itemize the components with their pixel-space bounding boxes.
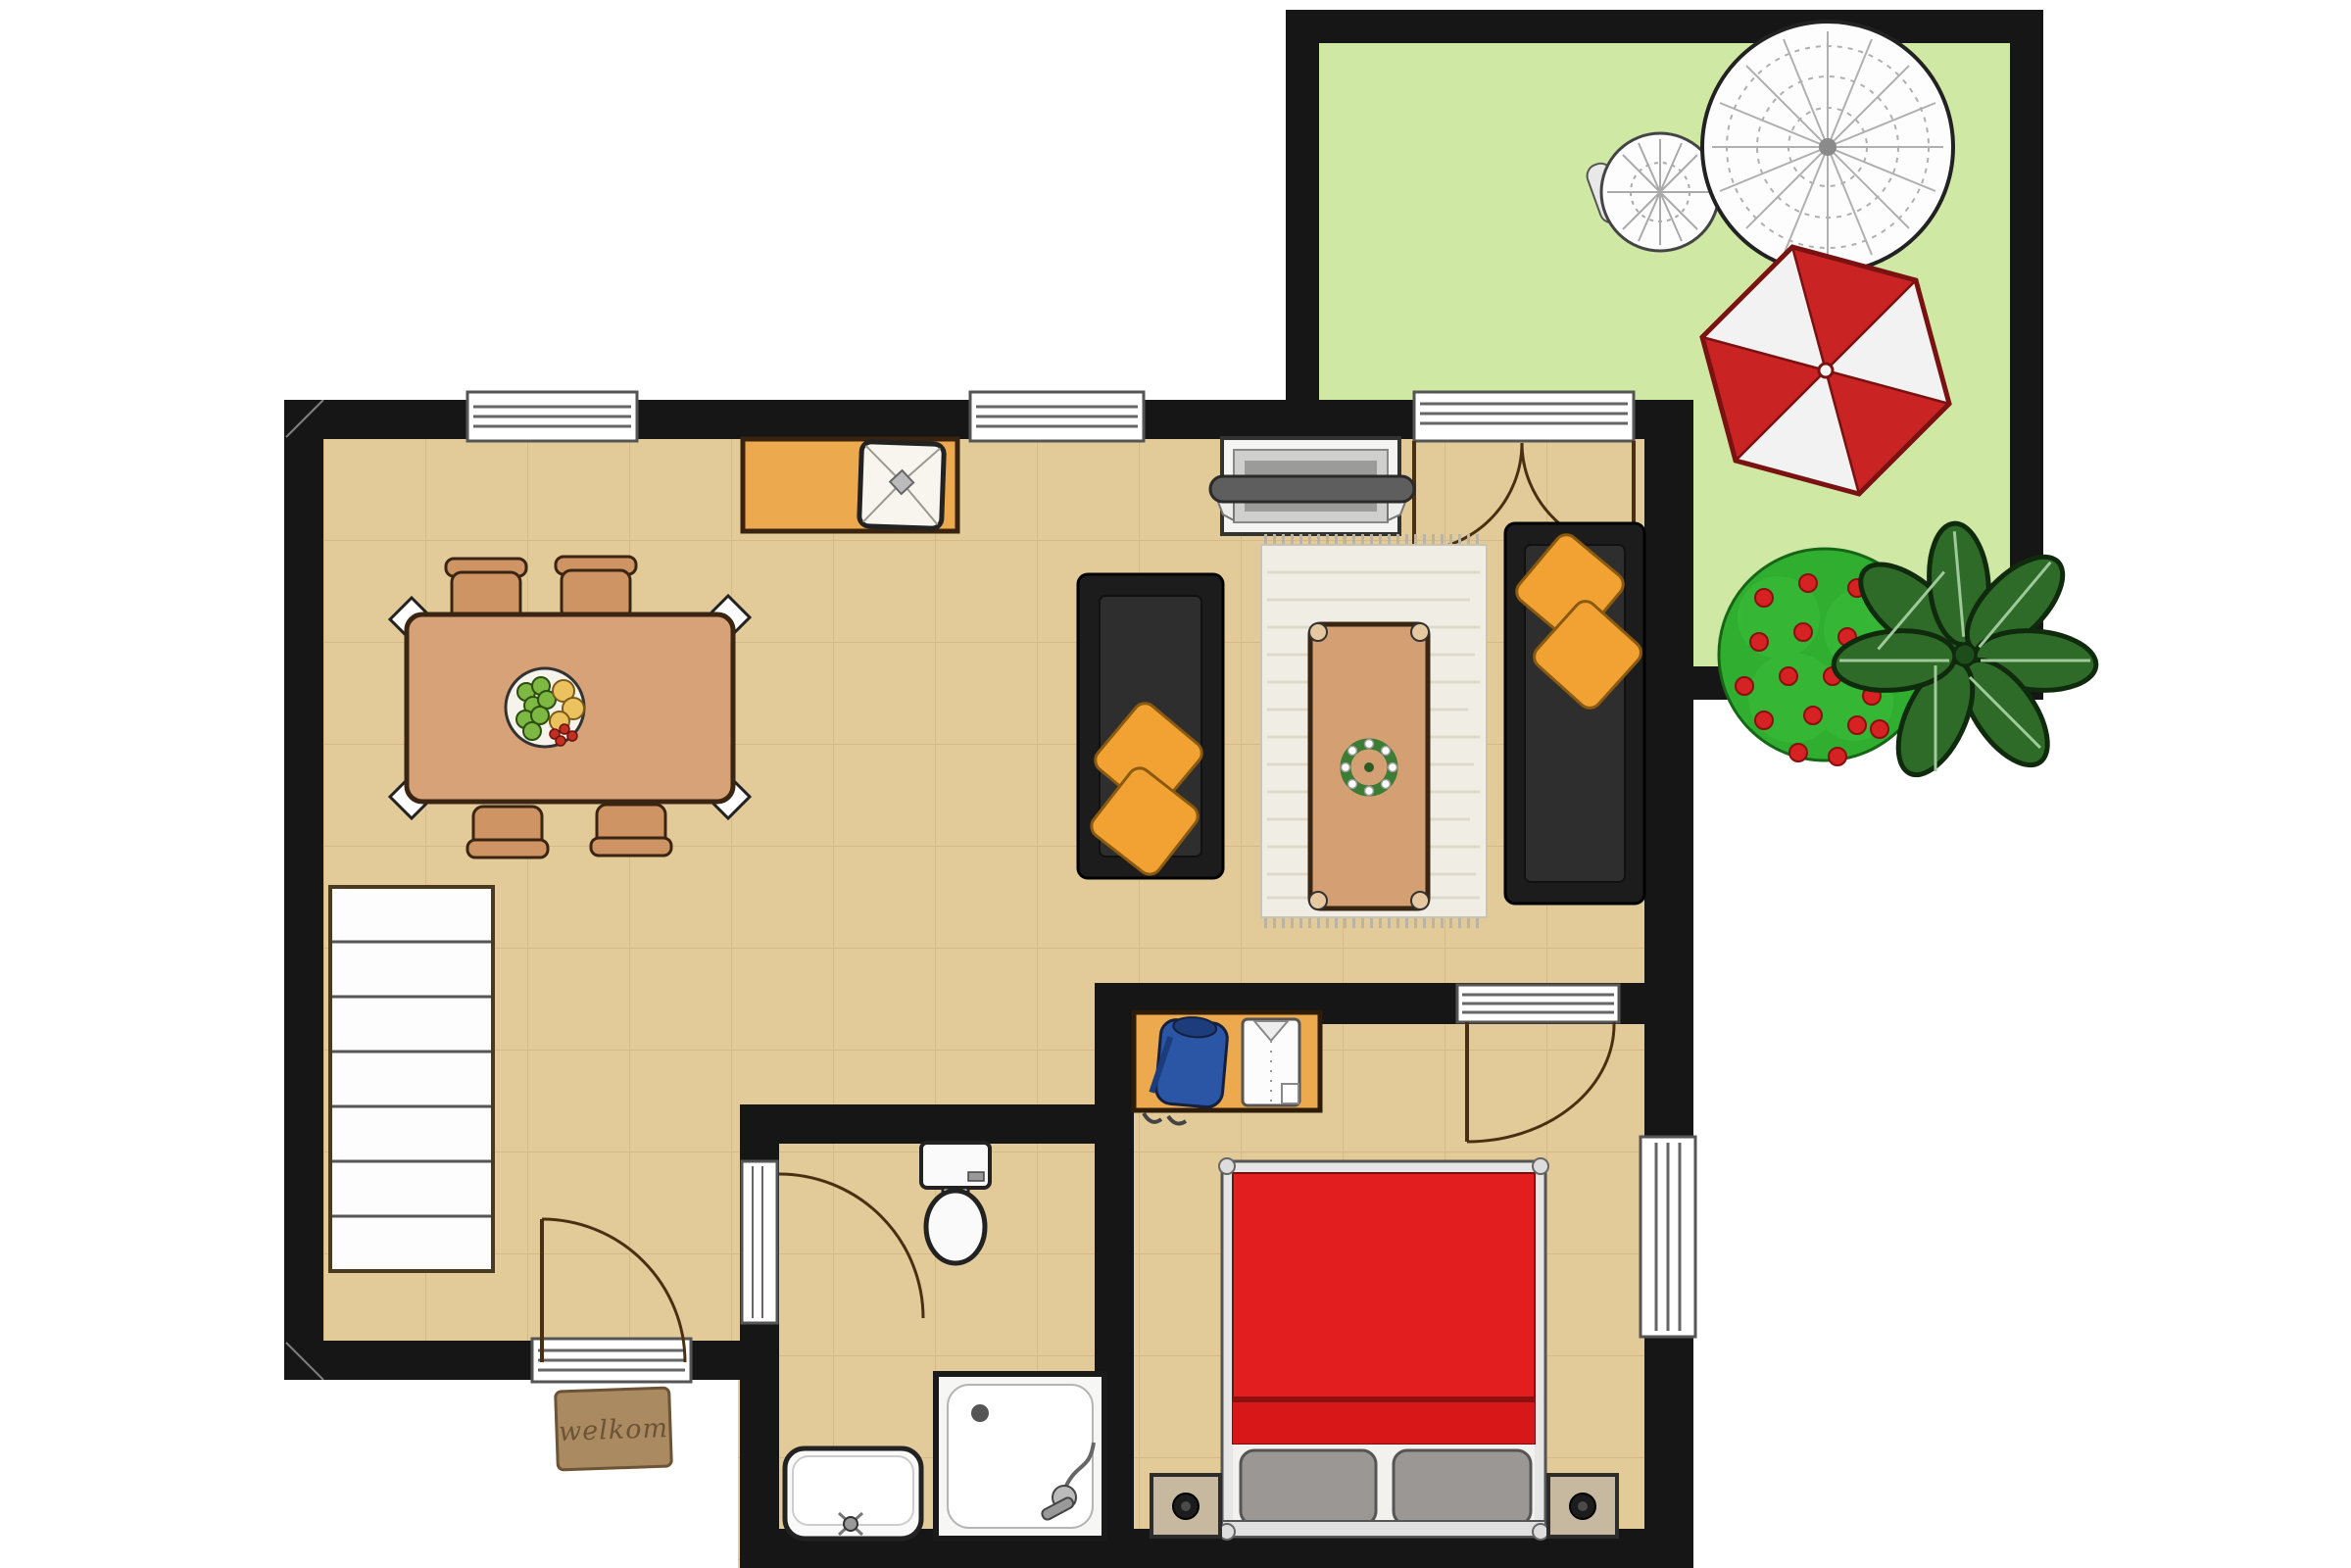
shower-drain [971,1404,989,1422]
table-center [1819,138,1837,156]
flower-centerpiece [1342,740,1397,796]
window-living [970,392,1144,441]
welcome-mat: welkom [556,1388,672,1470]
table-lamp [859,442,945,529]
sideboard [743,439,957,531]
nightstand [1151,1475,1220,1537]
flatscreen-tv [1210,476,1414,502]
flush-button [968,1172,984,1181]
dining-chair [446,559,526,621]
table-corner-knob [1411,623,1429,641]
dining-chair [467,807,548,857]
window-dining [467,392,637,441]
dining-chair [556,557,636,619]
chair-lace-pattern [1607,139,1713,245]
sweater [1151,1014,1229,1108]
parasol-pole [1819,364,1833,377]
shower [936,1374,1104,1539]
washbasin [785,1448,921,1539]
table-corner-knob [1309,892,1327,909]
wall-west [284,400,323,1380]
nightstand [1548,1475,1617,1537]
bed-pillow [1394,1450,1531,1525]
window-bedroom [1641,1137,1695,1337]
duvet-fold [1233,1401,1535,1444]
wardrobe [1134,1012,1320,1124]
fruit-bowl [506,668,584,747]
garden-table [1702,22,1953,272]
dining-chair [591,805,671,856]
folded-shirt [1243,1019,1299,1105]
plant-center [1954,644,1976,665]
staircase [330,887,493,1271]
floor-plan-page: welkom [0,0,2351,1568]
wall-east [1644,400,1693,1568]
double-bed [1219,1158,1548,1540]
toilet [921,1143,990,1263]
table-corner-knob [1411,892,1429,909]
floor-plan-canvas: welkom [0,0,2351,1568]
garden-wall-left [1286,10,1319,402]
bed-foot-rail [1222,1521,1545,1537]
living-area [1078,523,1645,923]
table-corner-knob [1309,623,1327,641]
coffee-table [1309,623,1429,909]
welcome-mat-text: welkom [559,1413,669,1447]
garden-wall-top [1286,10,2043,43]
tv-cabinet [1210,438,1414,534]
wall-bathroom-north [740,1104,1132,1144]
bed-pillow [1241,1450,1376,1525]
